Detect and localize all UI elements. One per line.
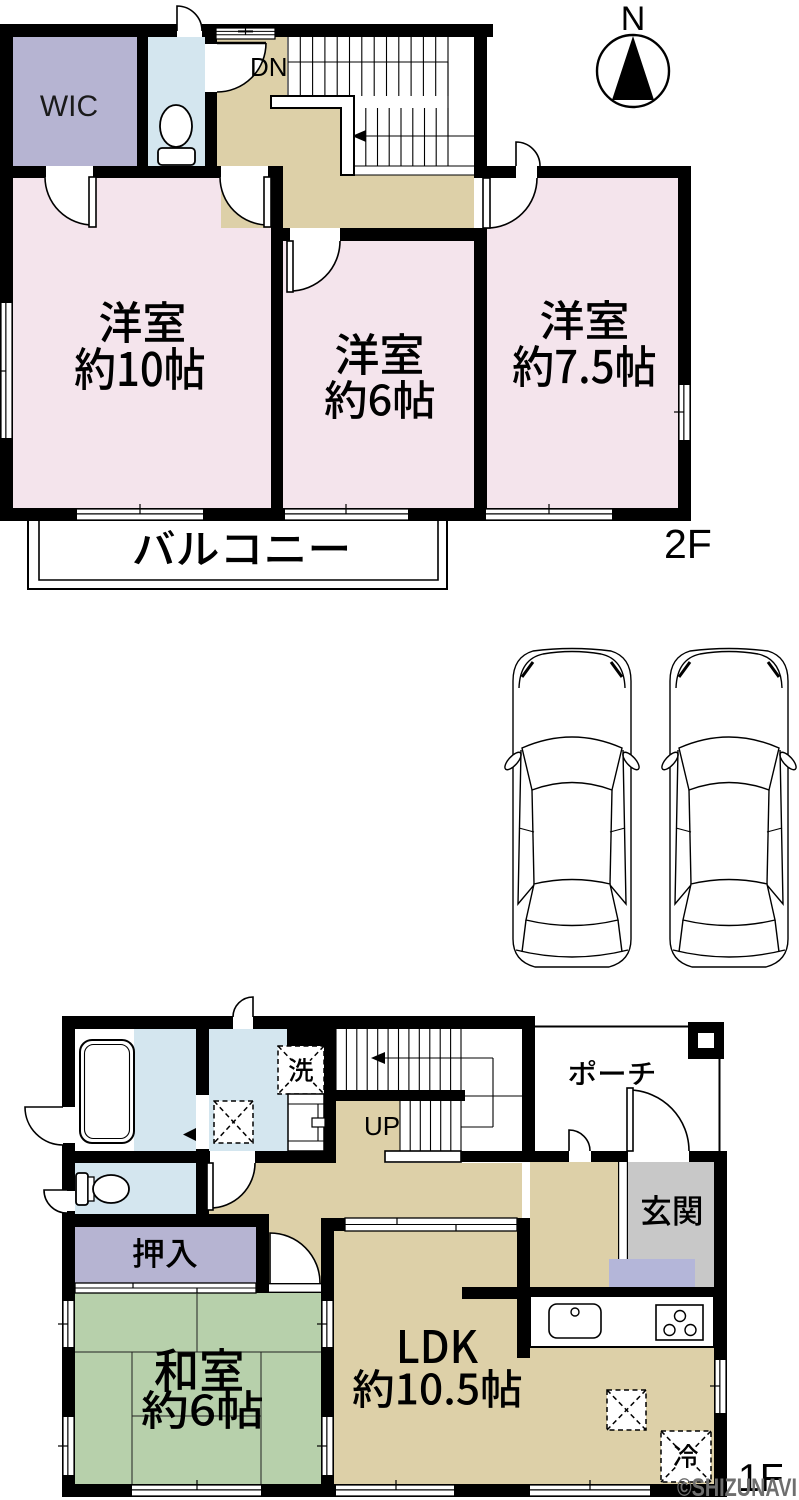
svg-text:N: N — [621, 0, 646, 38]
svg-text:WIC: WIC — [40, 90, 98, 123]
svg-text:2F: 2F — [664, 521, 712, 567]
svg-text:UP: UP — [364, 1111, 400, 1141]
svg-text:©SHIZUNAVI: ©SHIZUNAVI — [677, 1474, 797, 1500]
svg-text:DN: DN — [250, 52, 288, 82]
